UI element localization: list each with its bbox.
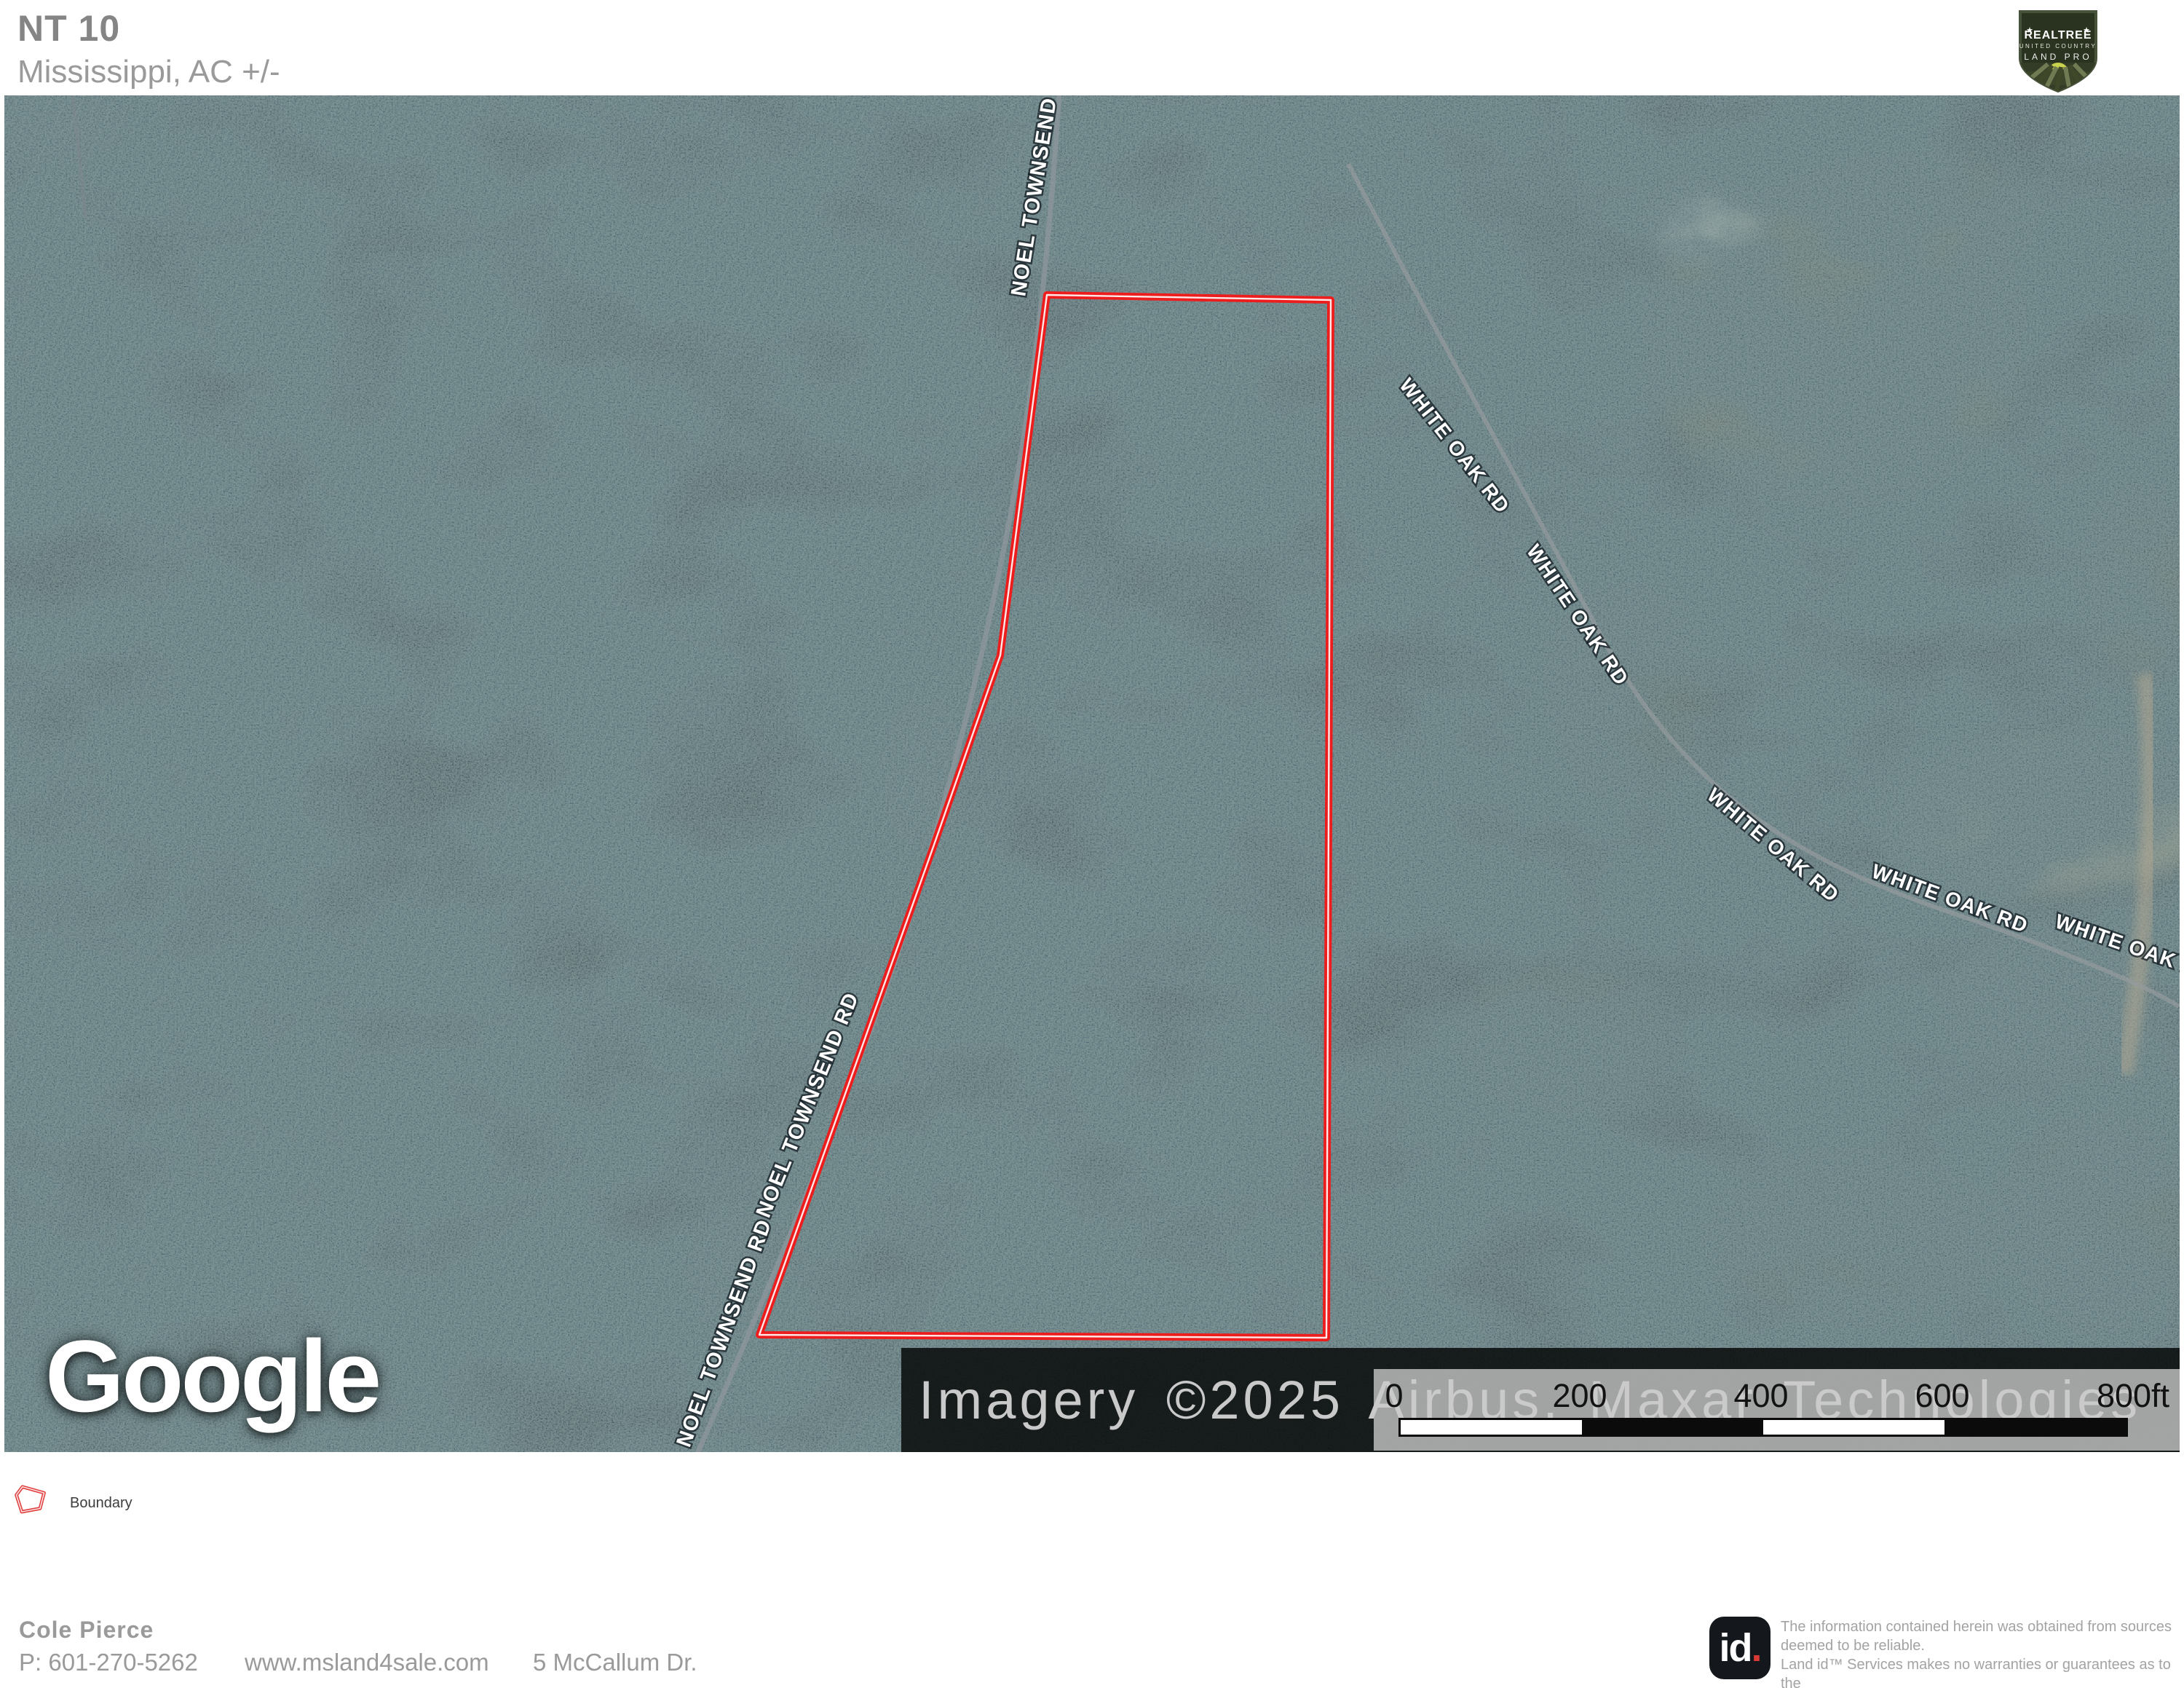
satellite-map: NOEL TOWNSEND RD NOEL TOWNSEND RD NOEL T… bbox=[4, 95, 2180, 1452]
scale-segment bbox=[1582, 1420, 1763, 1435]
disclaimer-line: The information contained herein was obt… bbox=[1781, 1617, 2184, 1636]
page-title: NT 10 bbox=[17, 7, 120, 50]
scale-box: 0 200 400 600 800ft bbox=[1374, 1369, 2180, 1451]
land-id-logo: id. bbox=[1709, 1617, 1770, 1679]
disclaimer-line: deemed to be reliable. bbox=[1781, 1636, 2184, 1655]
map-canvas: NOEL TOWNSEND RD NOEL TOWNSEND RD NOEL T… bbox=[4, 95, 2180, 1452]
scale-segment bbox=[1944, 1420, 2126, 1435]
realtree-shield-icon: ★ ★ REALTREE UNITED COUNTRY LAND PRO bbox=[2012, 0, 2104, 95]
land-flyer-page: NT 10 Mississippi, AC +/- ★ ★ REALTREE U… bbox=[0, 0, 2184, 1688]
brand-line-united-country: UNITED COUNTRY bbox=[2019, 43, 2097, 50]
scale-tick-600: 600 bbox=[1915, 1377, 1969, 1415]
scale-segment bbox=[1763, 1420, 1944, 1435]
agent-website: www.msland4sale.com bbox=[245, 1649, 489, 1676]
brand-line-land-pro: LAND PRO bbox=[2024, 52, 2092, 62]
scale-tick-200: 200 bbox=[1552, 1377, 1607, 1415]
scale-tick-800ft: 800ft bbox=[2097, 1377, 2169, 1415]
scale-tick-0: 0 bbox=[1385, 1377, 1403, 1415]
shield-field-art bbox=[2019, 63, 2097, 95]
map-legend: Boundary bbox=[12, 1484, 132, 1522]
brand-line-realtree: REALTREE bbox=[2024, 29, 2092, 42]
land-id-logo-text: id. bbox=[1719, 1625, 1760, 1671]
google-logo: Google bbox=[45, 1317, 379, 1435]
scale-tick-400: 400 bbox=[1733, 1377, 1788, 1415]
boundary-legend-icon bbox=[12, 1484, 50, 1522]
contact-row: P: 601-270-5262 www.msland4sale.com 5 Mc… bbox=[0, 1649, 874, 1681]
disclaimer: The information contained herein was obt… bbox=[1781, 1617, 2184, 1688]
disclaimer-line: Land id™ Services makes no warranties or… bbox=[1781, 1655, 2184, 1688]
realtree-land-pro-logo: ★ ★ REALTREE UNITED COUNTRY LAND PRO bbox=[2012, 0, 2104, 95]
agent-phone: P: 601-270-5262 bbox=[19, 1649, 198, 1676]
agent-address: 5 McCallum Dr. bbox=[533, 1649, 697, 1676]
scale-segment bbox=[1401, 1420, 1582, 1435]
page-subtitle: Mississippi, AC +/- bbox=[17, 54, 280, 90]
agent-name: Cole Pierce bbox=[19, 1617, 154, 1644]
scale-bar bbox=[1398, 1418, 2128, 1437]
boundary-legend-label: Boundary bbox=[70, 1495, 132, 1512]
land-id-logo-dot: . bbox=[1751, 1626, 1760, 1670]
pine-row-texture bbox=[4, 95, 1242, 1452]
